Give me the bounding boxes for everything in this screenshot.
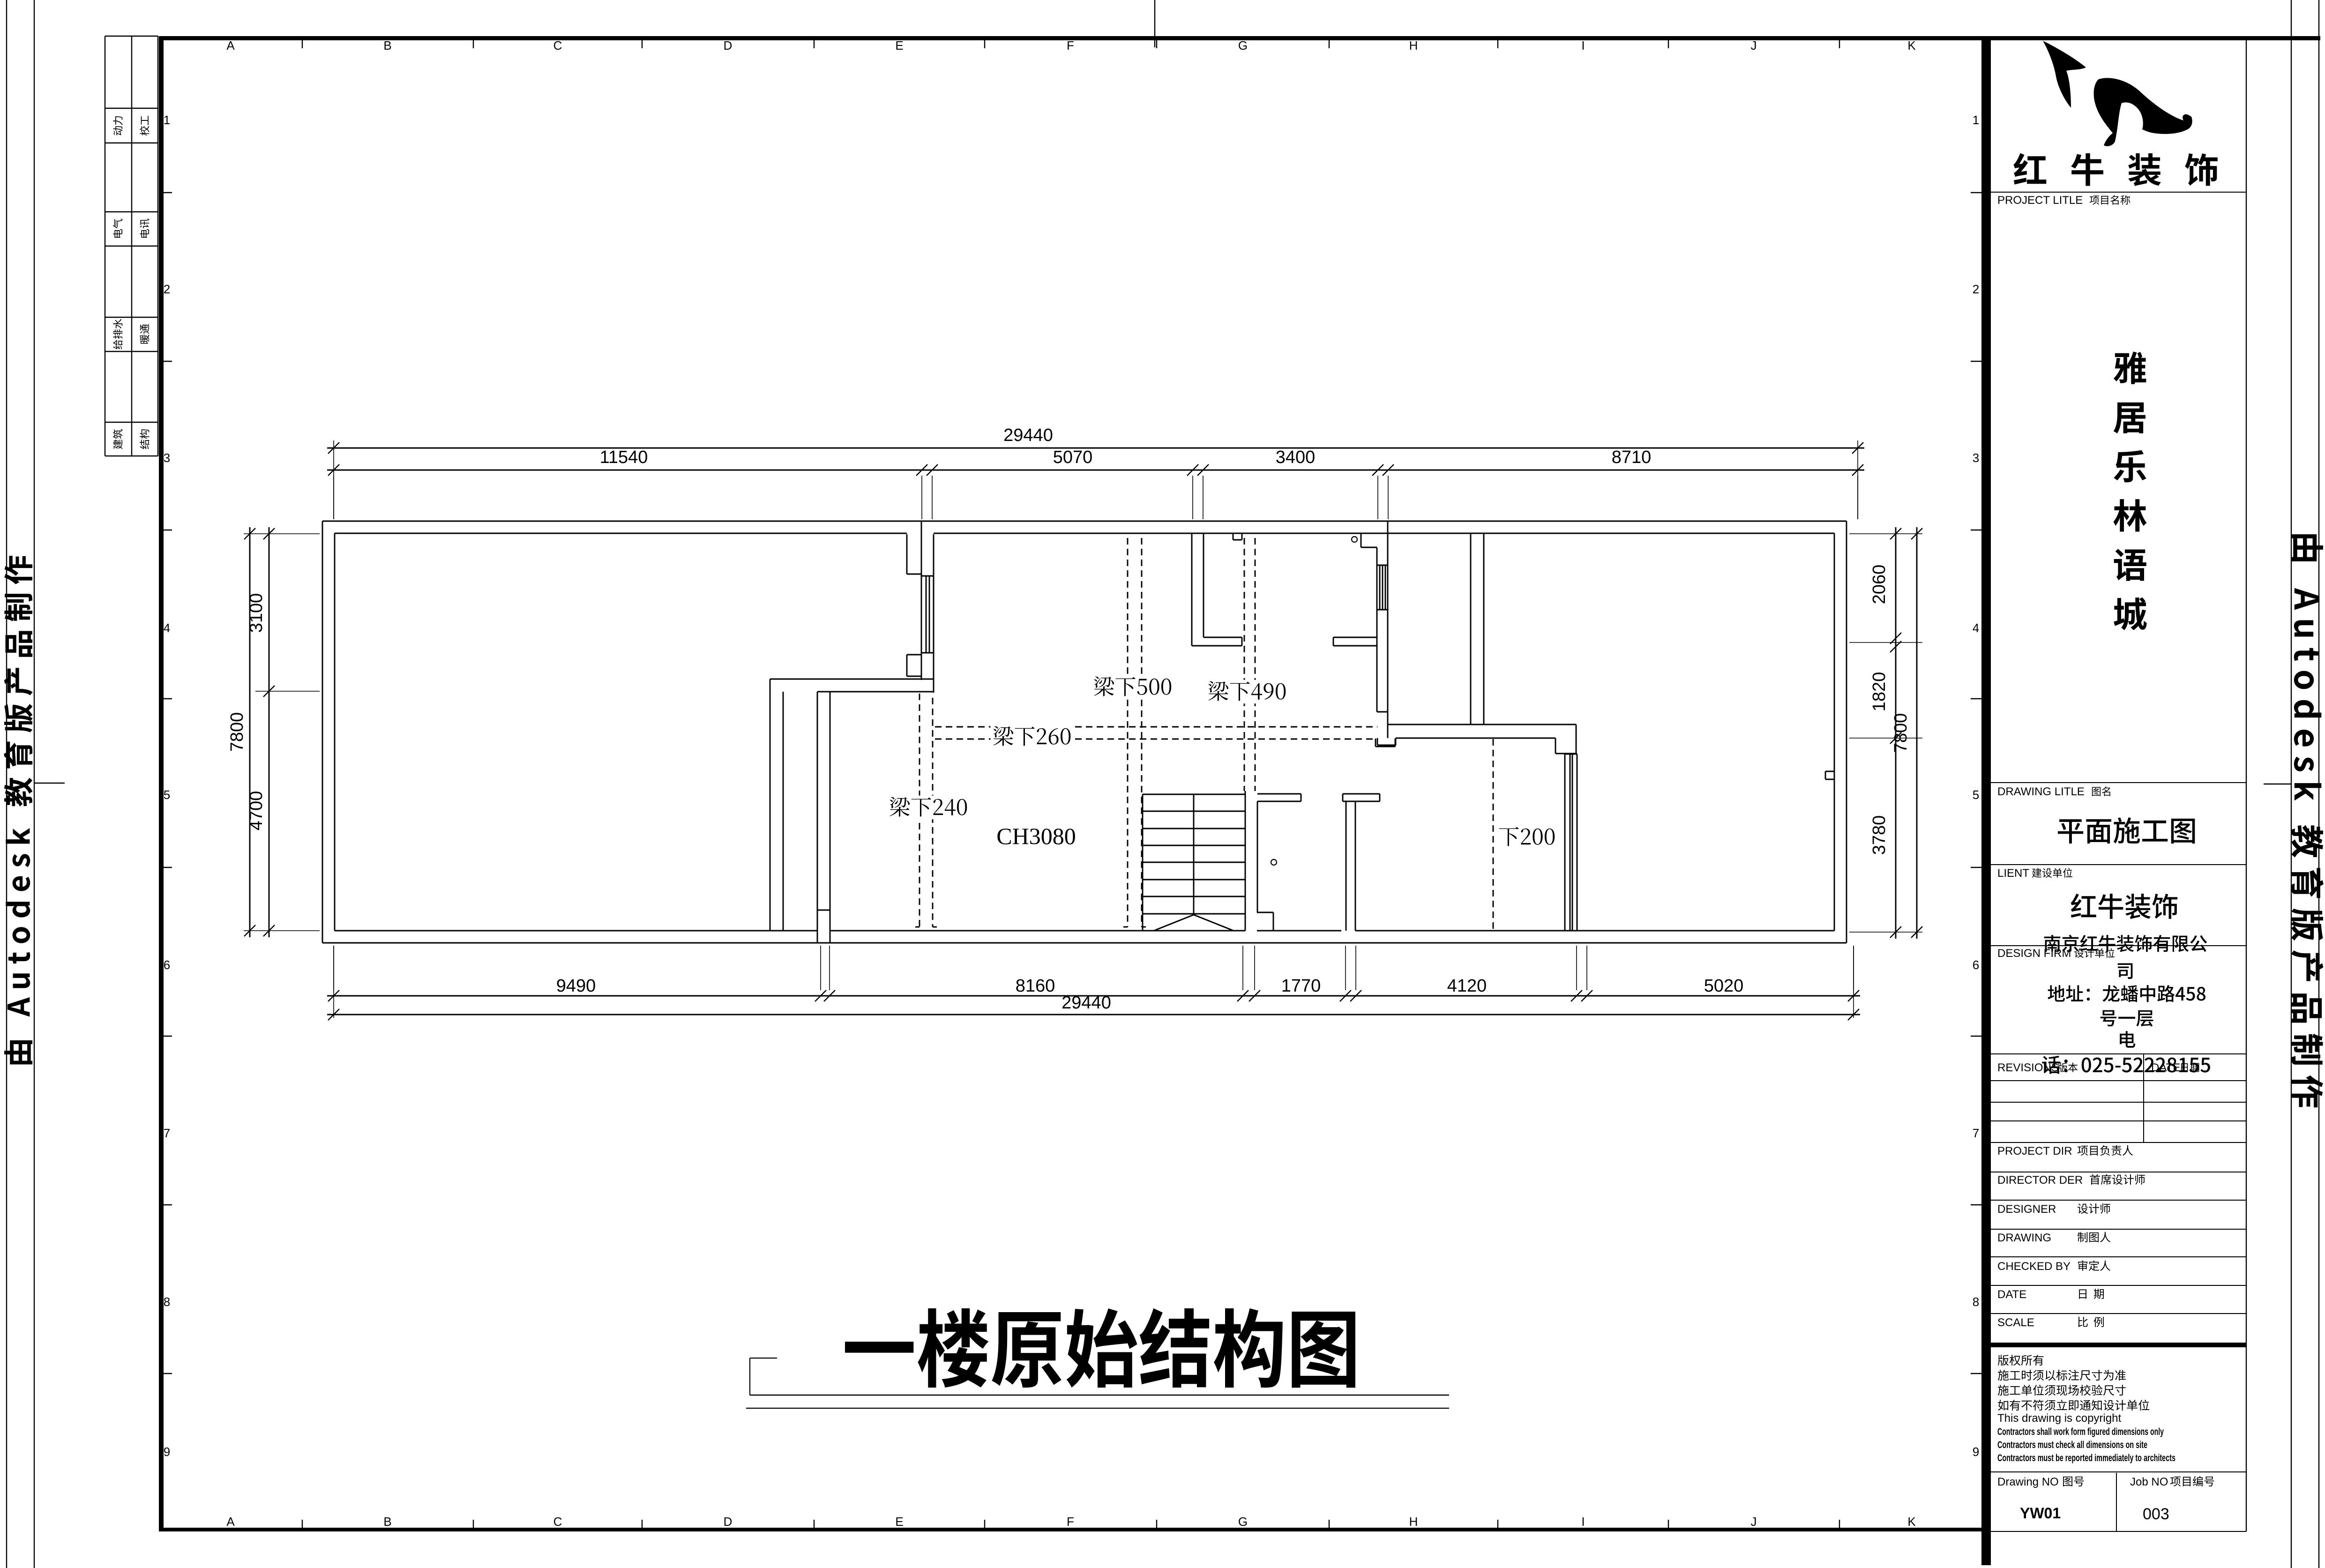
svg-text:A: A: [226, 1515, 235, 1529]
svg-text:DATE: DATE: [1997, 1288, 2026, 1301]
svg-text:K: K: [1907, 38, 1916, 52]
svg-text:DRAWING LITLE: DRAWING LITLE: [1997, 785, 2085, 798]
svg-text:A: A: [226, 38, 235, 52]
svg-text:DRAWING: DRAWING: [1997, 1232, 2051, 1244]
svg-text:11540: 11540: [600, 448, 648, 467]
svg-text:3: 3: [164, 451, 170, 465]
svg-text:5: 5: [1973, 788, 1979, 802]
svg-text:8710: 8710: [1612, 448, 1652, 467]
svg-text:5070: 5070: [1053, 448, 1093, 467]
svg-text:Contractors must check all dim: Contractors must check all dimensions on…: [1997, 1440, 2147, 1450]
svg-text:1: 1: [164, 113, 170, 127]
svg-text:F: F: [1067, 1515, 1074, 1529]
svg-text:9: 9: [164, 1445, 170, 1459]
svg-text:K: K: [1907, 1515, 1916, 1529]
svg-text:Contractors must be reported i: Contractors must be reported immediately…: [1997, 1453, 2175, 1463]
svg-text:29440: 29440: [1003, 426, 1053, 445]
svg-text:I: I: [1581, 38, 1585, 52]
svg-text:Job NO: Job NO: [2130, 1476, 2168, 1488]
svg-text:Drawing NO: Drawing NO: [1997, 1476, 2059, 1488]
svg-text:2060: 2060: [1869, 565, 1889, 605]
svg-text:6: 6: [164, 958, 170, 972]
svg-text:3780: 3780: [1869, 815, 1889, 855]
svg-text:LIENT: LIENT: [1997, 867, 2029, 880]
svg-text:I: I: [1581, 1515, 1585, 1529]
svg-text:2: 2: [164, 282, 170, 296]
svg-text:1: 1: [1973, 113, 1979, 127]
svg-text:7: 7: [1973, 1126, 1979, 1140]
svg-text:DESIGNER: DESIGNER: [1997, 1203, 2056, 1216]
svg-text:5020: 5020: [1704, 976, 1744, 996]
svg-text:6: 6: [1973, 958, 1979, 972]
svg-text:3: 3: [1973, 451, 1979, 465]
svg-text:Contractors shall work form fi: Contractors shall work form figured dime…: [1997, 1426, 2164, 1437]
svg-text:8: 8: [164, 1295, 170, 1309]
svg-text:9: 9: [1973, 1445, 1979, 1459]
svg-text:This drawing is copyright: This drawing is copyright: [1997, 1412, 2121, 1425]
svg-text:B: B: [383, 1515, 391, 1529]
svg-text:2: 2: [1973, 282, 1979, 296]
svg-text:7800: 7800: [227, 712, 247, 752]
svg-text:7: 7: [164, 1126, 170, 1140]
svg-text:D: D: [724, 1515, 733, 1529]
svg-text:29440: 29440: [1062, 993, 1111, 1013]
svg-text:8: 8: [1973, 1295, 1979, 1309]
svg-text:H: H: [1409, 1515, 1418, 1529]
svg-text:4120: 4120: [1447, 976, 1487, 996]
svg-text:B: B: [383, 38, 391, 52]
svg-text:C: C: [553, 1515, 562, 1529]
svg-text:G: G: [1238, 38, 1248, 52]
svg-text:H: H: [1409, 38, 1418, 52]
svg-text:003: 003: [2143, 1505, 2169, 1523]
svg-text:YW01: YW01: [2020, 1505, 2061, 1522]
svg-text:DIRECTOR DER: DIRECTOR DER: [1997, 1174, 2083, 1187]
svg-text:7800: 7800: [1891, 713, 1911, 753]
svg-text:1770: 1770: [1281, 976, 1321, 996]
svg-text:PROJECT LITLE: PROJECT LITLE: [1997, 194, 2083, 207]
svg-text:5: 5: [164, 788, 170, 802]
svg-text:8160: 8160: [1016, 976, 1055, 996]
svg-text:F: F: [1067, 38, 1074, 52]
svg-text:E: E: [895, 38, 903, 52]
svg-text:D: D: [724, 38, 733, 52]
svg-text:J: J: [1751, 38, 1757, 52]
svg-text:J: J: [1751, 1515, 1757, 1529]
svg-text:PROJECT DIR: PROJECT DIR: [1997, 1145, 2072, 1157]
svg-text:CH3080: CH3080: [996, 823, 1076, 849]
svg-text:DESIGN FIRM: DESIGN FIRM: [1997, 947, 2071, 960]
svg-text:3400: 3400: [1276, 448, 1316, 467]
svg-text:G: G: [1238, 1515, 1248, 1529]
svg-text:4: 4: [1973, 621, 1979, 635]
svg-text:1820: 1820: [1869, 672, 1889, 712]
svg-text:9490: 9490: [556, 976, 596, 996]
svg-text:CHECKED BY: CHECKED BY: [1997, 1260, 2071, 1273]
svg-text:SCALE: SCALE: [1997, 1316, 2034, 1329]
svg-text:E: E: [895, 1515, 903, 1529]
svg-text:4: 4: [164, 621, 170, 635]
svg-text:C: C: [553, 38, 562, 52]
